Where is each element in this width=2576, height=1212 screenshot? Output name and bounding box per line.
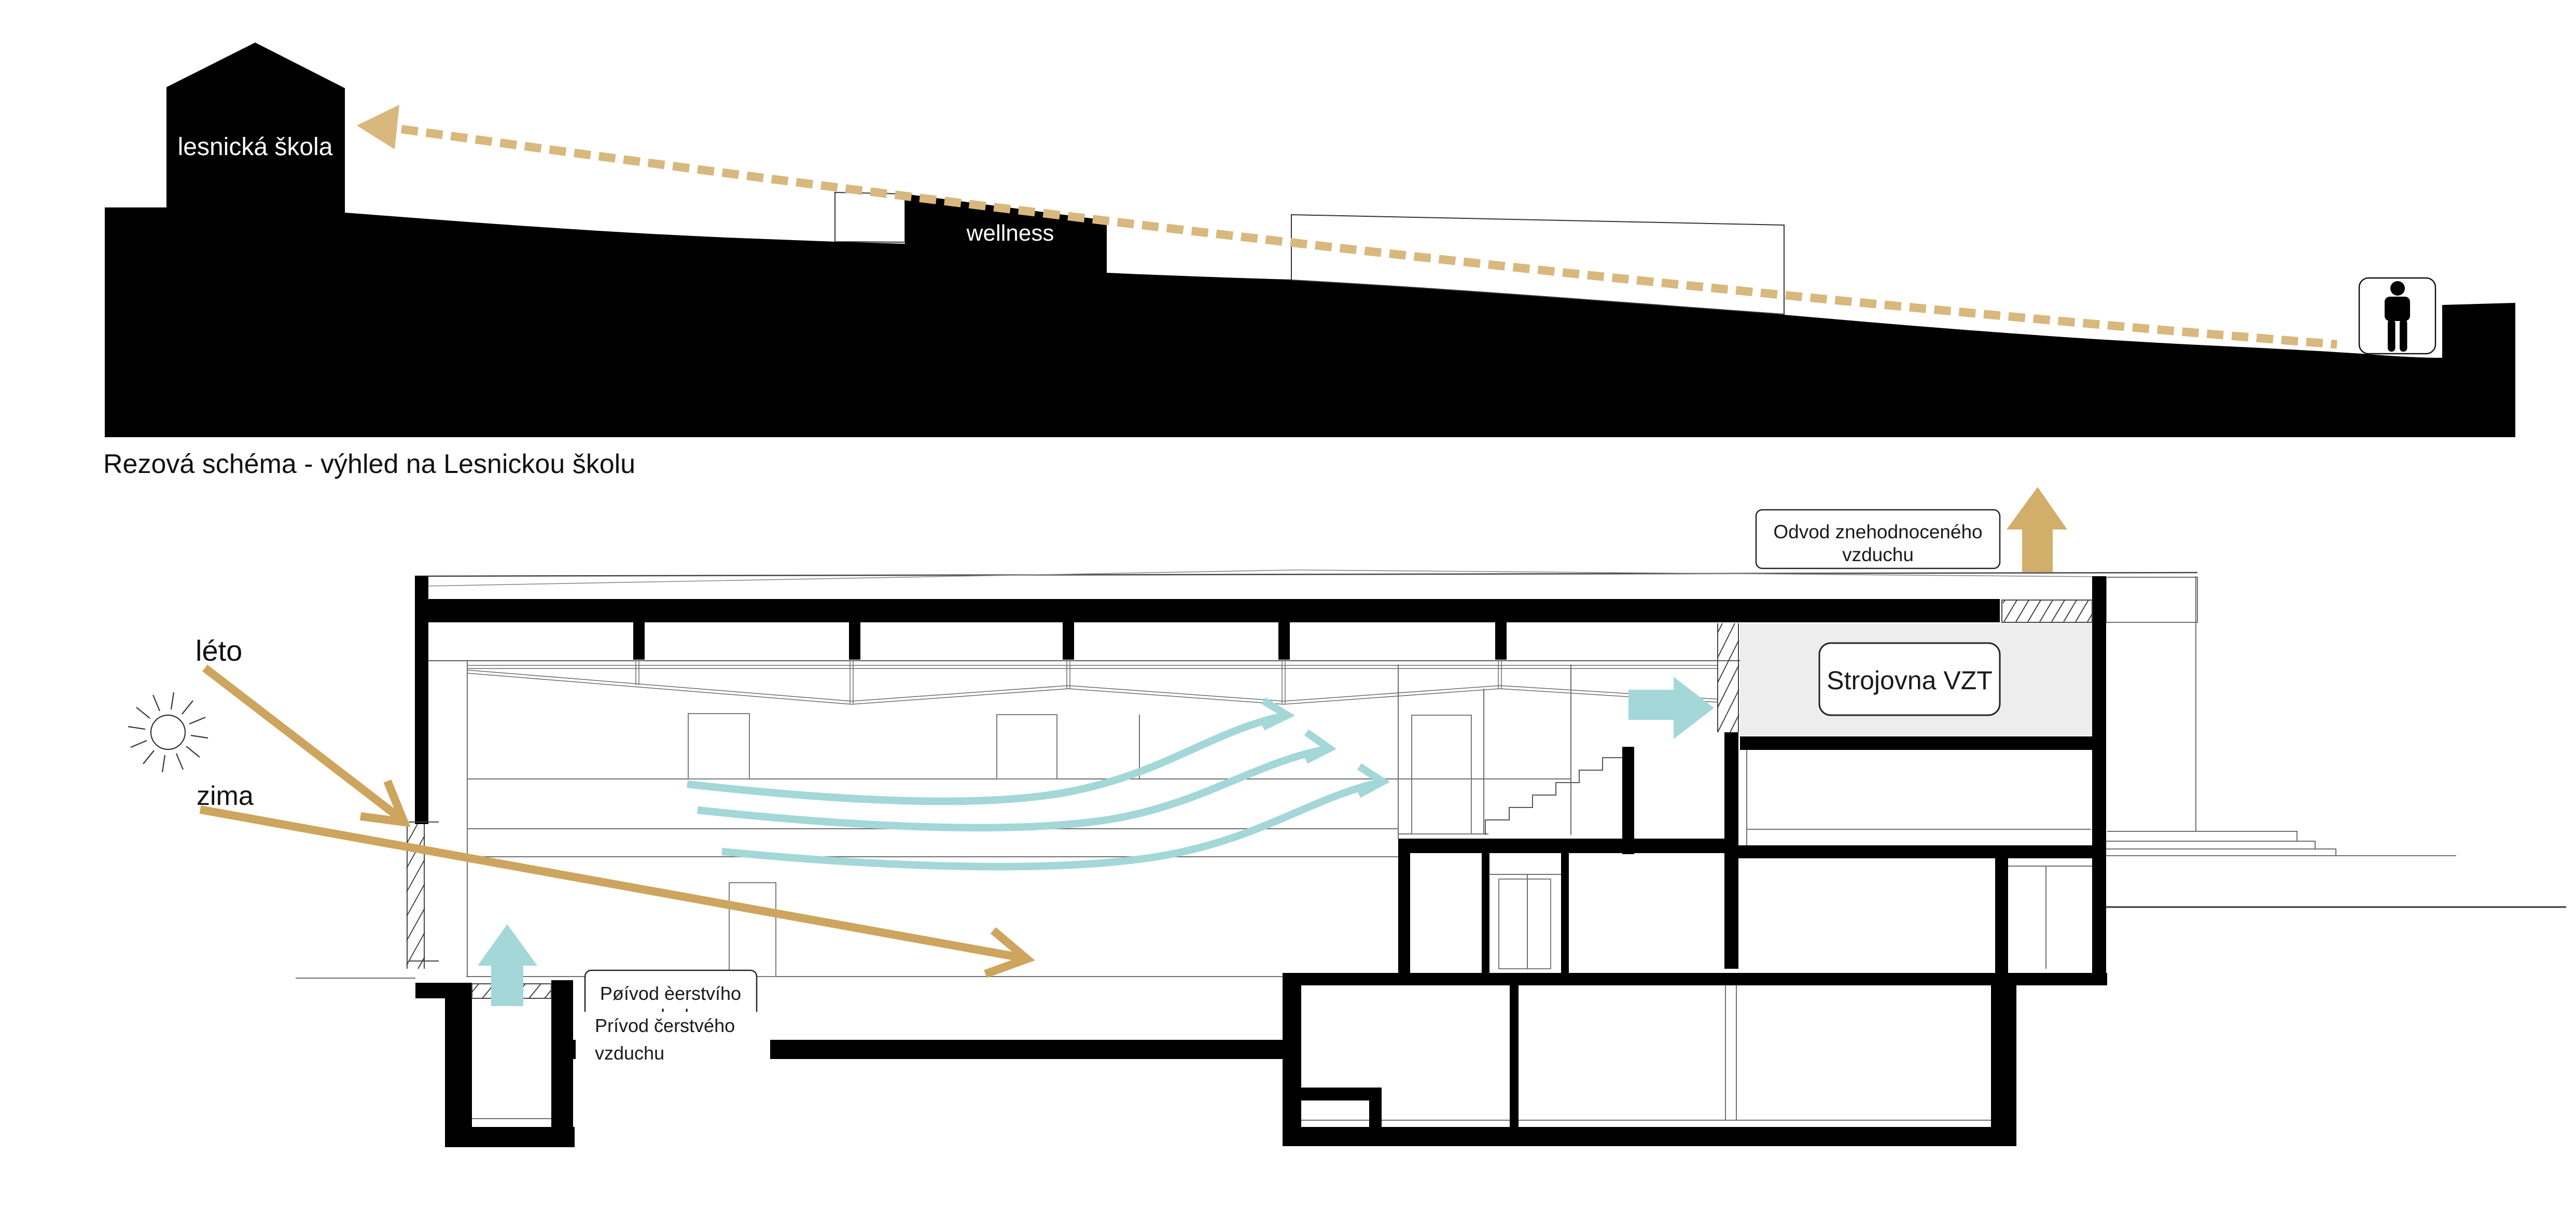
svg-text:Odvod znehodnoceného: Odvod znehodnoceného [1773,521,1982,542]
svg-text:léto: léto [196,634,242,667]
svg-text:Pøívod èerstvího: Pøívod èerstvího [600,983,741,1004]
svg-text:Rezová schéma - výhled na Lesn: Rezová schéma - výhled na Lesnickou škol… [103,449,635,479]
svg-text:vzduchu: vzduchu [595,1042,664,1064]
svg-text:vzduchu: vzduchu [1842,544,1914,565]
svg-text:Prívod čerstvého: Prívod čerstvého [595,1015,735,1036]
svg-text:wellness: wellness [966,220,1054,246]
svg-text:Strojovna VZT: Strojovna VZT [1827,666,1993,695]
svg-text:lesnická škola: lesnická škola [178,133,333,161]
svg-text:zima: zima [197,781,254,811]
